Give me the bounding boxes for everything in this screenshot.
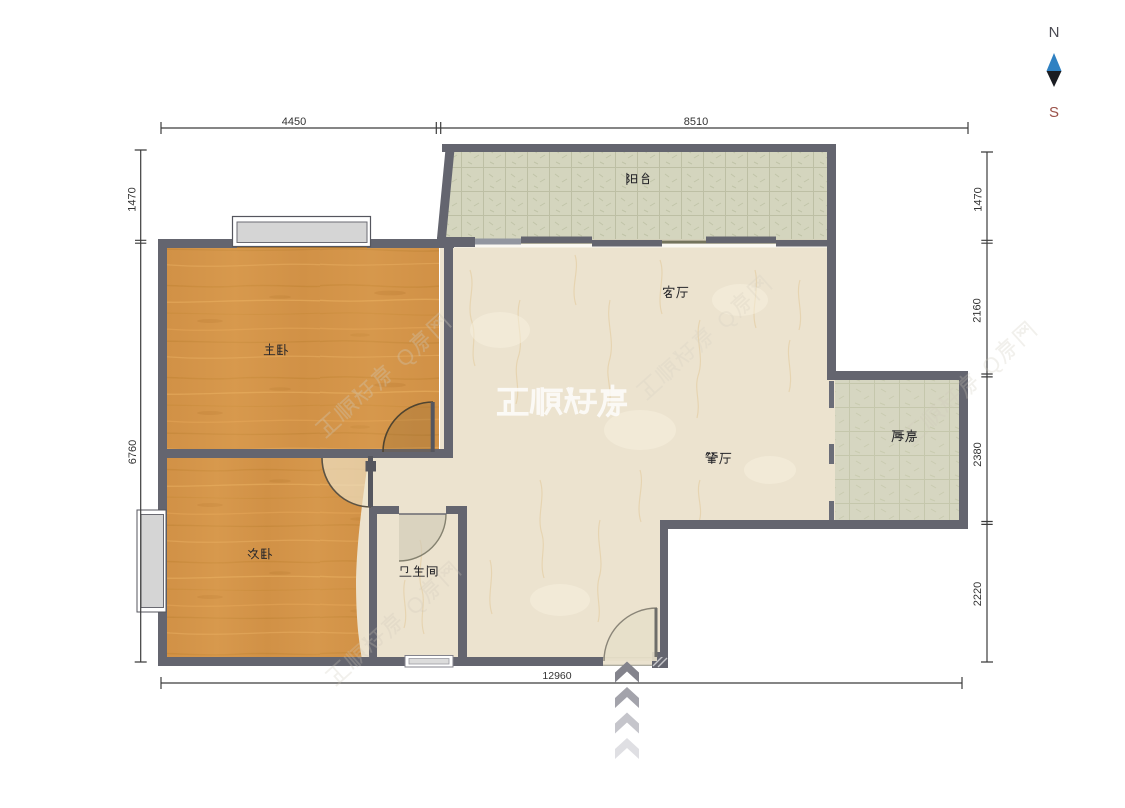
svg-text:1470: 1470 xyxy=(972,187,984,211)
svg-text:8510: 8510 xyxy=(684,116,708,128)
svg-text:2380: 2380 xyxy=(972,442,984,466)
svg-text:2220: 2220 xyxy=(972,582,984,606)
svg-text:12960: 12960 xyxy=(542,670,571,682)
svg-text:4450: 4450 xyxy=(282,116,306,128)
svg-text:6760: 6760 xyxy=(127,440,139,464)
svg-text:2160: 2160 xyxy=(971,298,983,322)
svg-text:1470: 1470 xyxy=(126,187,138,211)
svg-text:S: S xyxy=(1049,104,1059,121)
svg-text:N: N xyxy=(1049,24,1060,41)
